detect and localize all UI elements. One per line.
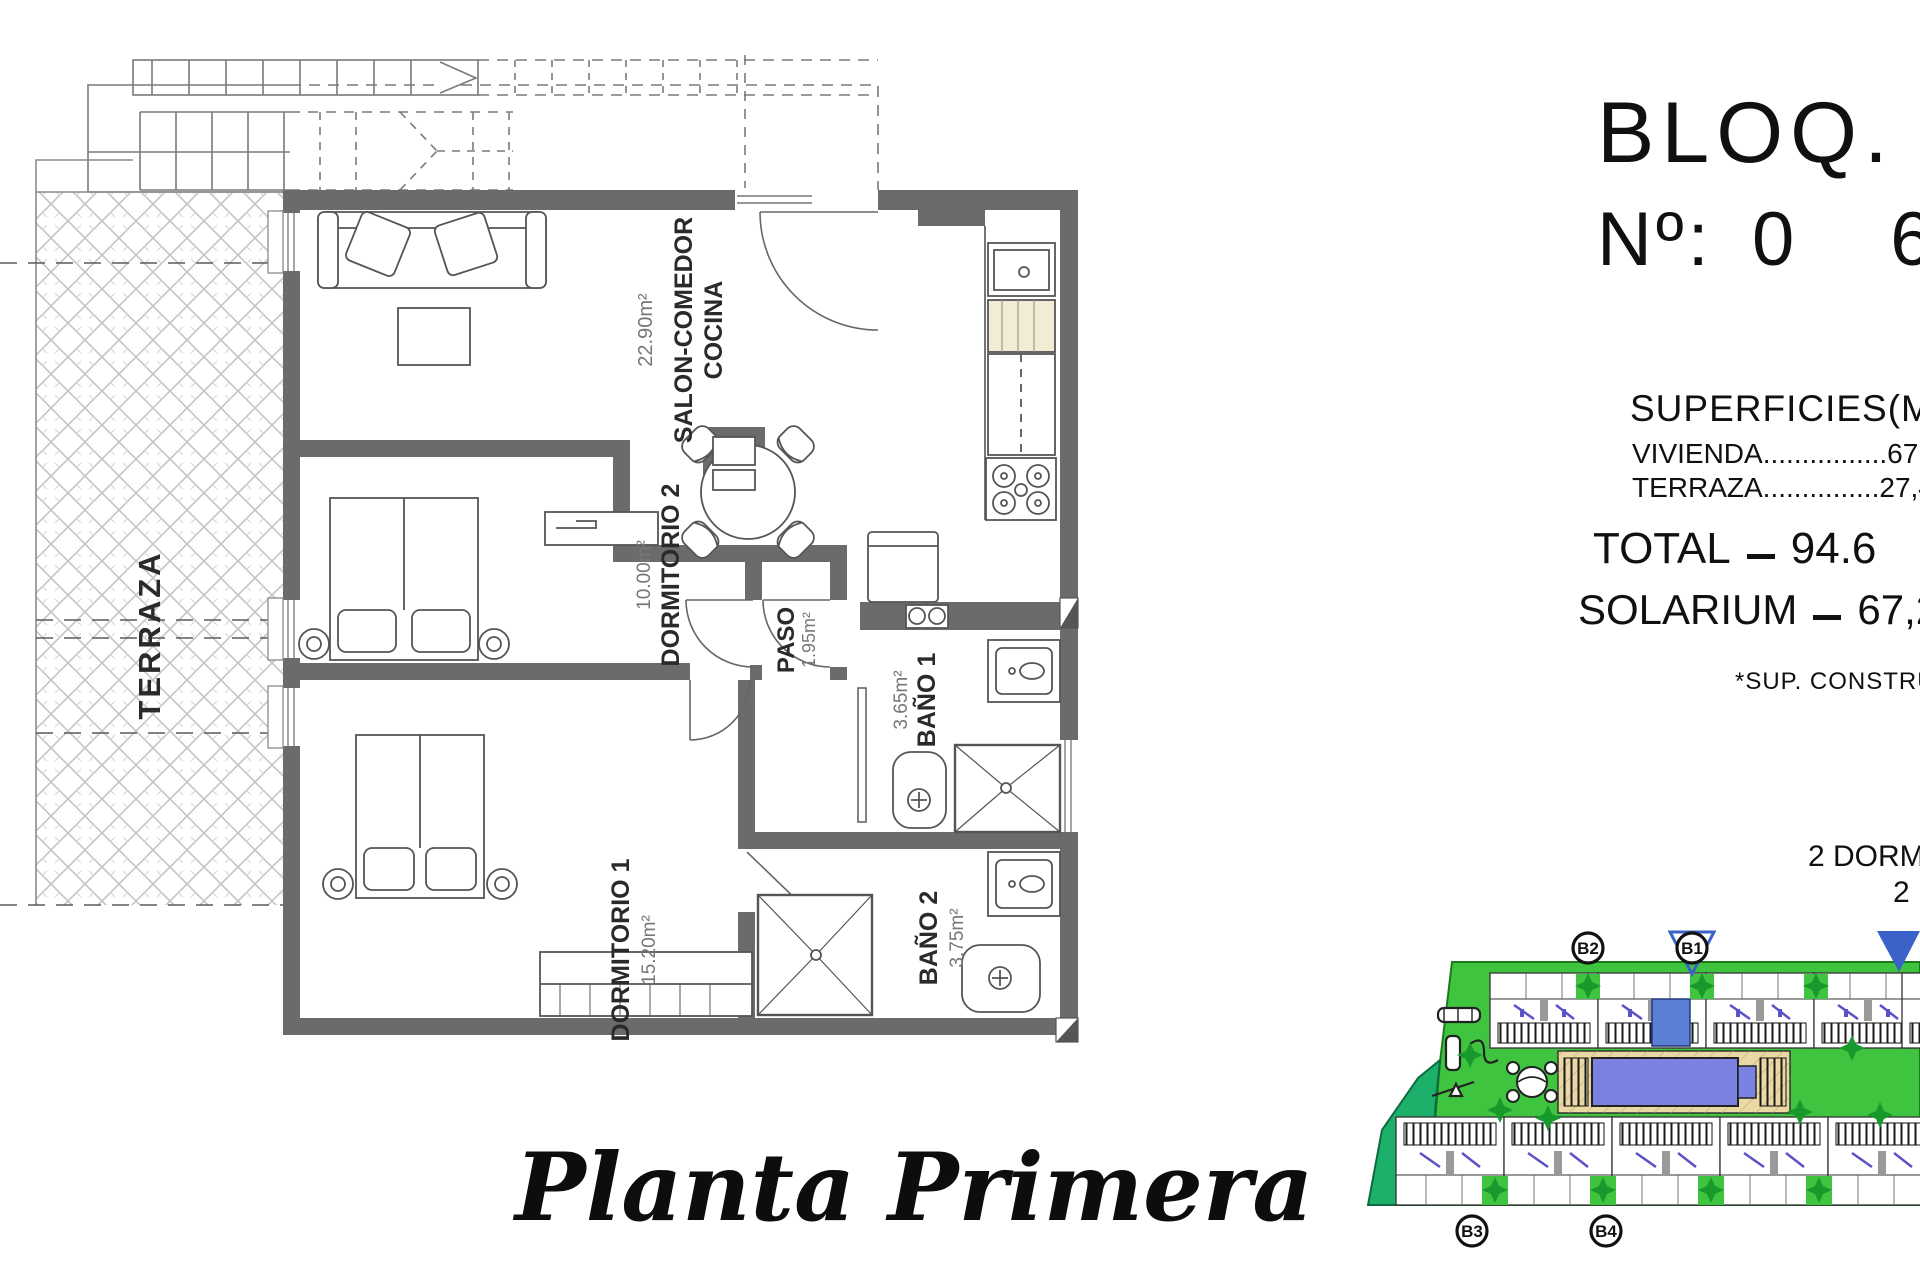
pool-step xyxy=(1738,1066,1756,1098)
kitchen-counter xyxy=(985,226,1056,520)
vent-marker xyxy=(1056,1018,1078,1042)
site-plan: B2 B1 B3 B4 xyxy=(1368,931,1920,1246)
bano2-name: BAÑO 2 xyxy=(913,891,943,985)
terrace-paving xyxy=(36,192,283,905)
dorm2-name: DORMITORIO 2 xyxy=(657,484,685,667)
staircase xyxy=(88,55,878,192)
pool xyxy=(1592,1058,1738,1106)
page: { "floor_plan": { "caption": "Planta Pri… xyxy=(0,0,1920,1280)
shower xyxy=(955,745,1060,832)
constructed-area-footnote: *SUP. CONSTRUIDA xyxy=(1735,668,1920,696)
washer-column xyxy=(868,532,938,602)
svg-text:B1: B1 xyxy=(1681,939,1703,958)
dorm1-furniture xyxy=(323,735,752,1016)
kitchen-hob xyxy=(986,458,1056,520)
kitchen-sink xyxy=(988,243,1055,296)
total-value: 94.6 xyxy=(1791,524,1877,573)
block-title: BLOQ. xyxy=(1597,84,1895,183)
plan-caption: Planta Primera xyxy=(512,1133,1313,1243)
drawing-canvas: TERRAZA xyxy=(0,0,1920,1280)
solarium-separator xyxy=(1813,615,1841,620)
coffee-table xyxy=(398,308,470,365)
feature-bedrooms: 2 DORMI xyxy=(1808,840,1920,874)
toilet xyxy=(962,945,1040,1012)
salon-area: 22.90m² xyxy=(635,293,657,367)
salon-name-2: COCINA xyxy=(700,281,728,380)
paso-area: 1.95m² xyxy=(799,612,819,668)
washbasin xyxy=(988,852,1060,916)
bano1-leaf xyxy=(858,688,866,822)
kitchen-appliance xyxy=(988,300,1055,352)
window xyxy=(268,211,300,273)
pool-area xyxy=(1558,1051,1790,1113)
dorm1-name: DORMITORIO 1 xyxy=(607,858,635,1041)
marker-b4: B4 xyxy=(1591,1216,1621,1246)
marker-b2: B2 xyxy=(1573,933,1603,963)
terrace-label: TERRAZA xyxy=(132,550,167,719)
total-separator xyxy=(1747,554,1775,559)
entry-door xyxy=(760,212,878,330)
total-label: TOTAL xyxy=(1593,524,1731,573)
paso-name: PASO xyxy=(773,607,800,673)
shower xyxy=(758,895,872,1015)
dorm2-area: 10.00m² xyxy=(634,540,655,610)
bano1-area: 3.65m² xyxy=(891,670,912,729)
window xyxy=(1060,740,1078,832)
dorm1-area: 15.20m² xyxy=(639,915,660,985)
svg-text:B4: B4 xyxy=(1595,1222,1617,1241)
unit-number-label: Nº: xyxy=(1597,196,1713,283)
unit-number-value: 06 xyxy=(1752,196,1920,283)
salon-name-1: SALON-COMEDOR xyxy=(670,217,698,443)
bano2-area: 3.75m² xyxy=(947,908,968,967)
terrace: TERRAZA xyxy=(0,160,283,905)
svg-text:B3: B3 xyxy=(1461,1222,1483,1241)
dorm2-furniture xyxy=(299,498,509,660)
surface-row-vivienda: VIVIENDA................67,2 xyxy=(1632,438,1920,470)
vent-marker xyxy=(1060,598,1078,628)
window xyxy=(268,598,300,660)
total-row: TOTAL94.6 xyxy=(1593,524,1876,574)
laundry-sink xyxy=(906,605,948,628)
unit-highlighted xyxy=(1652,999,1690,1046)
tv-sideboard xyxy=(545,512,658,545)
solarium-row: SOLARIUM67,2 xyxy=(1578,586,1920,634)
floor-plan: TERRAZA xyxy=(0,55,1313,1243)
window xyxy=(268,686,300,748)
surface-row-terraza: TERRAZA...............27,4 xyxy=(1632,472,1920,504)
cabinet-block xyxy=(713,437,755,490)
washbasin xyxy=(988,640,1060,702)
marker-b3: B3 xyxy=(1457,1216,1487,1246)
sofa xyxy=(318,210,546,288)
dorm2-door xyxy=(686,600,753,667)
feature-bathrooms: 2 xyxy=(1893,876,1910,910)
solarium-value: 67,2 xyxy=(1857,586,1920,633)
toilet xyxy=(893,752,946,828)
surfaces-title: SUPERFICIES(M²) xyxy=(1630,388,1920,430)
bano2-fixtures xyxy=(758,852,1060,1015)
solarium-label: SOLARIUM xyxy=(1578,586,1797,633)
unit-row-bottom xyxy=(1396,1117,1920,1205)
bano1-name: BAÑO 1 xyxy=(911,653,941,748)
svg-text:B2: B2 xyxy=(1577,939,1599,958)
